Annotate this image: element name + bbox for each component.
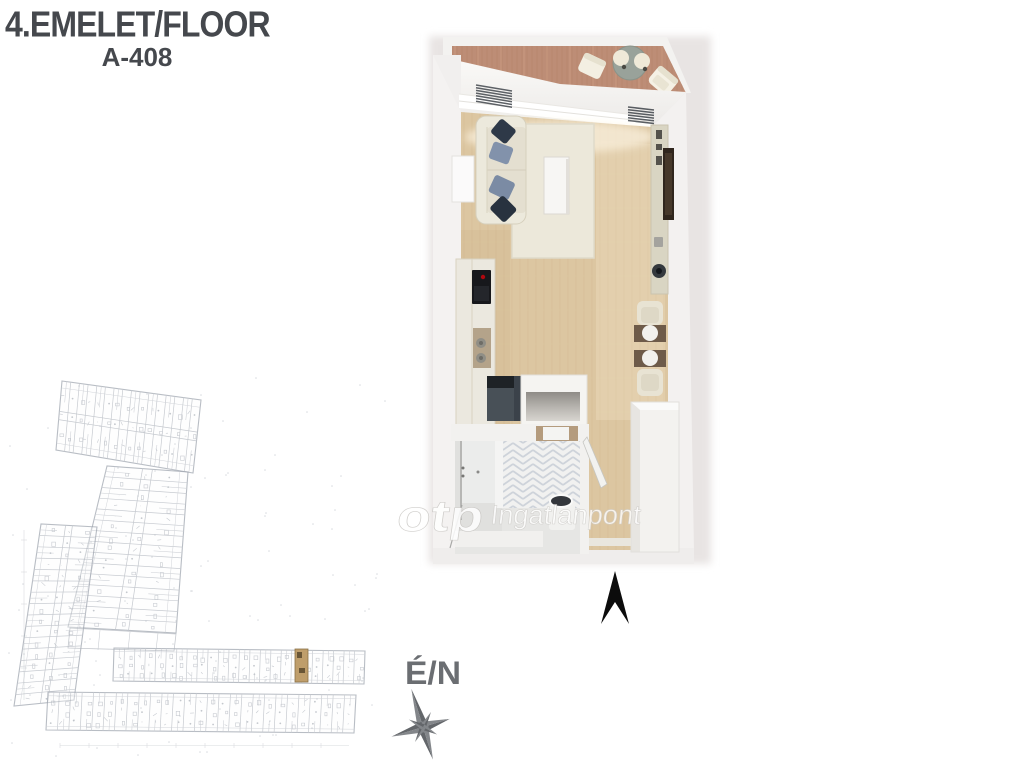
svg-text:otp: otp <box>394 492 487 541</box>
svg-text:Ingatlanpont: Ingatlanpont <box>489 499 643 530</box>
svg-text:É/N: É/N <box>405 655 461 691</box>
